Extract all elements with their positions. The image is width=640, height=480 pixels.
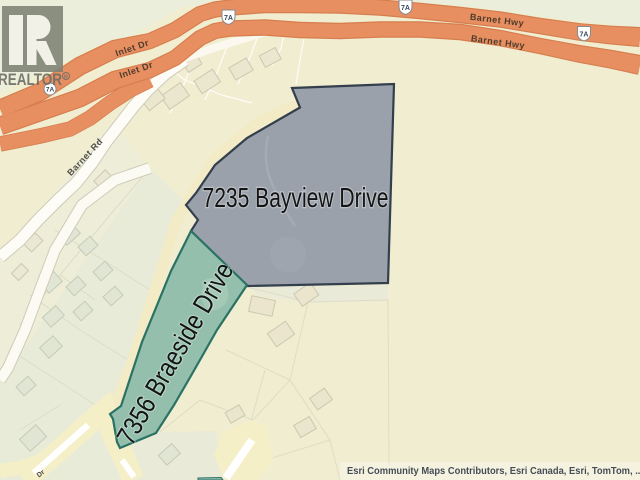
svg-text:R: R [64, 75, 68, 81]
svg-text:7235 Bayview Drive: 7235 Bayview Drive [203, 182, 389, 213]
svg-text:7A: 7A [580, 31, 589, 38]
svg-text:7A: 7A [224, 15, 233, 22]
svg-text:REALTOR: REALTOR [0, 71, 62, 89]
svg-text:7A: 7A [401, 5, 410, 12]
svg-text:Esri Community Maps Contributo: Esri Community Maps Contributors, Esri C… [347, 465, 640, 477]
